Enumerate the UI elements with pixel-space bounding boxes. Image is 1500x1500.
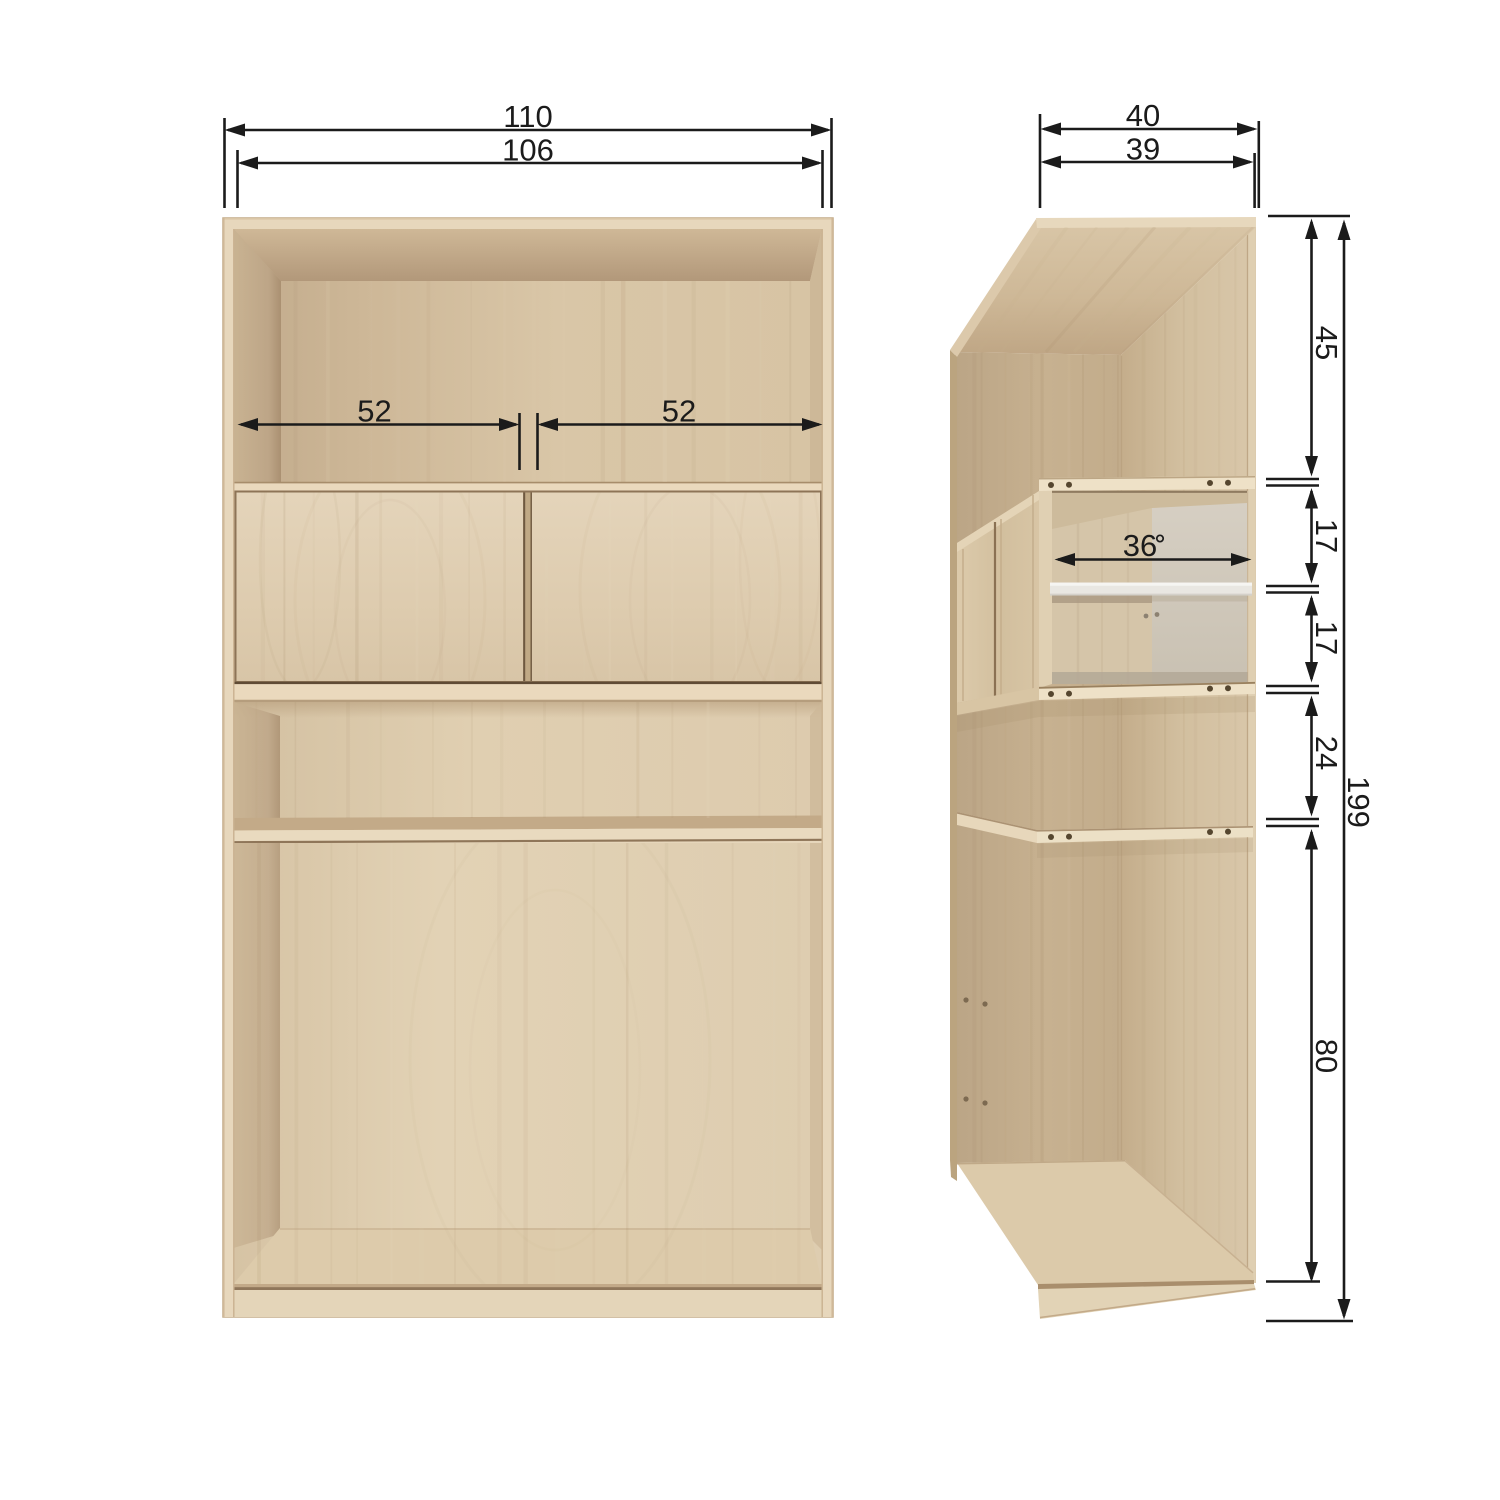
svg-text:52: 52 xyxy=(662,394,696,429)
svg-text:17: 17 xyxy=(1309,621,1344,655)
svg-text:110: 110 xyxy=(503,99,552,134)
svg-text:80: 80 xyxy=(1309,1039,1344,1073)
svg-text:39: 39 xyxy=(1126,132,1160,167)
svg-text:40: 40 xyxy=(1126,98,1160,133)
svg-text:199: 199 xyxy=(1341,776,1376,828)
svg-text:24: 24 xyxy=(1309,736,1344,770)
svg-text:106: 106 xyxy=(502,133,554,168)
svg-text:17: 17 xyxy=(1309,519,1344,553)
svg-text:36: 36 xyxy=(1123,528,1157,563)
svg-text:52: 52 xyxy=(357,394,391,429)
svg-text:45: 45 xyxy=(1309,326,1344,360)
